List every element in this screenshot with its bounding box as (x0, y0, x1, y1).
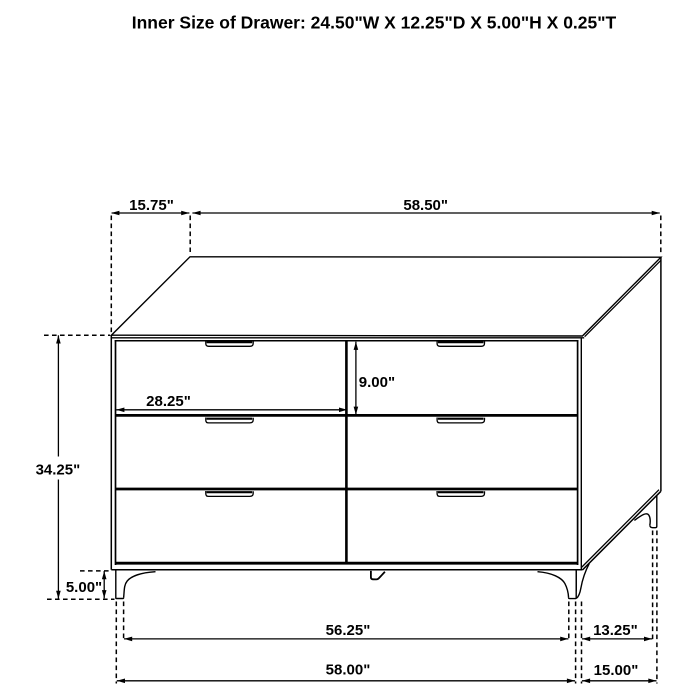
svg-text:34.25": 34.25" (36, 462, 81, 479)
svg-text:5.00": 5.00" (66, 579, 102, 596)
svg-text:9.00": 9.00" (359, 374, 395, 391)
svg-text:13.25": 13.25" (593, 622, 638, 639)
svg-text:15.00": 15.00" (594, 662, 639, 679)
svg-text:58.50": 58.50" (403, 197, 448, 214)
svg-text:58.00": 58.00" (326, 662, 371, 679)
svg-text:15.75": 15.75" (129, 197, 174, 214)
svg-text:28.25": 28.25" (146, 393, 191, 410)
svg-text:56.25": 56.25" (326, 622, 371, 639)
svg-text:Inner Size of Drawer: 24.50"W: Inner Size of Drawer: 24.50"W X 12.25"D … (132, 13, 617, 33)
